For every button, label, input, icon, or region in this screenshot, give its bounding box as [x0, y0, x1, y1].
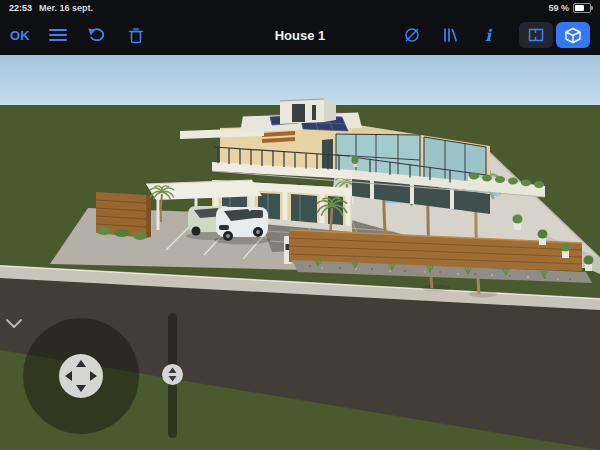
3d-view-button[interactable]: [556, 22, 590, 48]
slider-arrows-icon: [162, 364, 183, 385]
toolbar: OK: [0, 15, 600, 55]
visibility-off-button[interactable]: [401, 24, 423, 46]
joystick-arrows-icon: [59, 354, 103, 398]
undo-icon: [87, 27, 106, 43]
status-bar: 22:53 Mer. 16 sept. 59 %: [0, 0, 600, 15]
visibility-off-icon: [403, 26, 421, 44]
move-joystick[interactable]: [23, 318, 139, 434]
view-mode-toggle: [519, 22, 590, 48]
sky: [0, 55, 600, 107]
hide-controls-button[interactable]: [5, 316, 23, 334]
2d-plan-icon: [527, 27, 545, 43]
catalog-books-icon: [442, 27, 459, 43]
catalog-button[interactable]: [439, 24, 461, 46]
chevron-down-icon: [5, 318, 23, 330]
left-fence: [96, 192, 151, 240]
camera-height-slider[interactable]: [168, 313, 177, 438]
battery-icon: [573, 3, 591, 13]
trash-button[interactable]: [125, 24, 147, 46]
svg-text:i: i: [485, 26, 493, 44]
2d-plan-button[interactable]: [519, 22, 553, 48]
joystick-knob[interactable]: [59, 354, 103, 398]
ok-button[interactable]: OK: [10, 28, 30, 43]
menu-button[interactable]: [47, 24, 69, 46]
slider-knob[interactable]: [162, 364, 183, 385]
date: Mer. 16 sept.: [39, 3, 93, 13]
info-button[interactable]: i: [477, 24, 499, 46]
car-white: [214, 207, 270, 245]
app-screen: 22:53 Mer. 16 sept. 59 % OK: [0, 0, 600, 450]
trash-icon: [128, 27, 144, 44]
3d-cube-icon: [563, 26, 583, 45]
menu-icon: [49, 28, 67, 42]
clock: 22:53: [9, 3, 32, 13]
info-icon: i: [482, 26, 494, 44]
undo-button[interactable]: [86, 24, 108, 46]
battery-percent: 59 %: [548, 3, 569, 13]
